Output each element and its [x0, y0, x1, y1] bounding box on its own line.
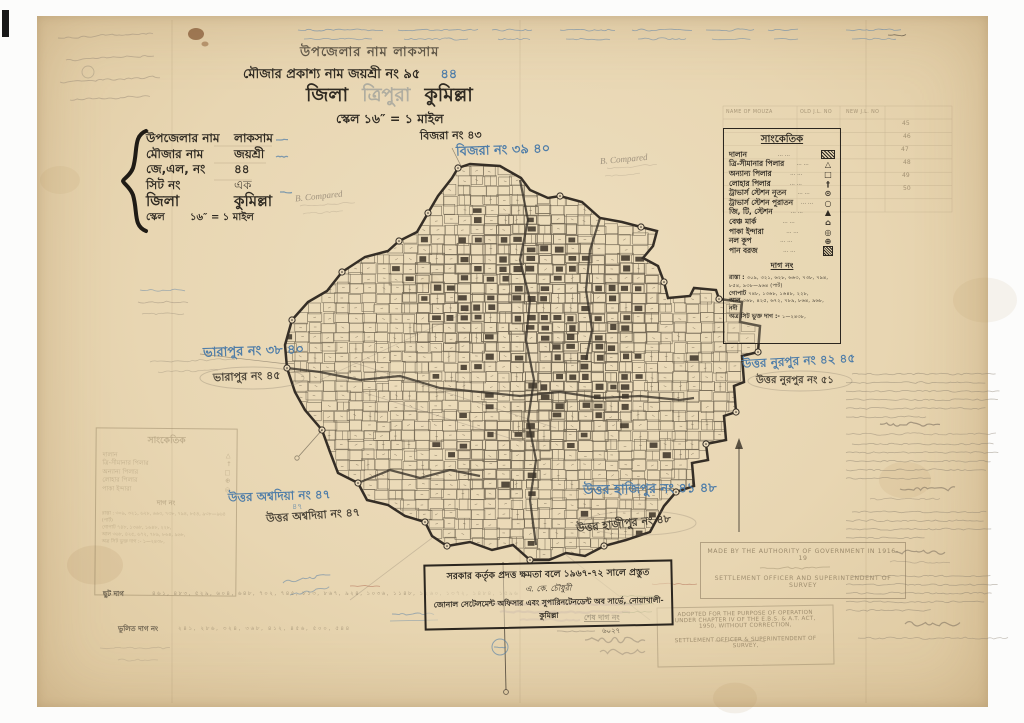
legend-dag-row: অত্র সিট ভুক্ত দাগ :- ১—২৪৩৮, — [729, 313, 835, 321]
english-stamp-authority: MADE BY THE AUTHORITY OF GOVERNMENT IN 1… — [700, 542, 906, 599]
english-stamp-adopted: ADOPTED FOR THE PURPOSE OF OPERATION UND… — [656, 604, 834, 667]
traverse-station-new-icon: ⊙ — [821, 190, 835, 198]
bhulito-dag-numbers: ২৪১, ২৮৬, ৩২৪, ৩৬৮, ৪১২, ৪৫৬, ৫০০, ৫৪৪ — [178, 627, 351, 633]
stamp-line2: জোনাল সেটেলমেন্ট অফিসার এবং সুপারিনটেনডে… — [432, 595, 665, 626]
header-jl-number-blue: ৪৪ — [440, 67, 457, 82]
legend-dag-row: আল ৩৬৮, ৪২৫, ৬৭২, ৭৮৯, ৮৬৪, ৯৬৮, — [729, 297, 835, 305]
legend-leader: ··· ··· — [793, 201, 821, 207]
legend-dag-row: রাস্তা : ৩০৯, ৩২১, ৬২৮, ৬৬৩, ৭৩৮, ৭৯৪, ৮… — [729, 274, 835, 290]
ghost-dag-title: দাগ নং — [102, 497, 230, 509]
info-value: লাকসাম — [234, 132, 273, 145]
legend-leader: ··· ··· — [758, 249, 821, 255]
legend-dag-row: গোপাট ৭৪৮, ১৩৬৮, ১৬৪৮, ২২৮, — [729, 290, 835, 298]
legend-item: পান বরজ··· ··· — [729, 247, 835, 257]
neighbor-label-nurpur-black: উত্তর নুরপুর নং ৫১ — [756, 376, 834, 387]
ghost-dag-row: অত্র সিট ভুক্ত দাগ :- ১—২৪৩৮, — [102, 539, 230, 547]
neighbor-label-bijra-black: বিজরা নং ৪৩ — [420, 129, 482, 142]
dag-row-label: আল — [729, 297, 740, 304]
info-label: জিলা — [146, 194, 224, 210]
info-box: উপজেলার নাম লাকসাম মৌজার নাম জয়শ্রী জে,… — [146, 132, 281, 227]
ghost-legend: সাংকেতিক দালান△ ত্রি-সীমানার পিলার† অন্য… — [94, 427, 237, 596]
info-label: স্কেল — [146, 213, 180, 224]
dag-row-numbers: ৩৬৮, ৪২৫, ৬৭২, ৭৮৯, ৮৬৪, ৯৬৮, — [743, 299, 825, 304]
info-value: এক — [234, 179, 252, 192]
header-mouza-name: মৌজার প্রকাশ্য নাম জয়শ্রী নং ৯৫ — [243, 67, 420, 82]
info-row-scale: স্কেল ১৬″ = ১ মাইল — [146, 213, 281, 224]
legend-leader: ··· ··· — [784, 162, 821, 168]
legend: সাংকেতিক দালান··· ··· ত্রি-সীমানার পিলার… — [723, 128, 841, 344]
info-label: মৌজার নাম — [146, 148, 224, 161]
scanned-mouza-map-sheet: NAME OF MOUZA OLD J.L. NO NEW J.L. NO 45… — [0, 0, 1024, 723]
legend-leader: ··· ··· — [751, 239, 821, 245]
info-label: জে,এল, নং — [146, 163, 224, 176]
ghost-legend-title: সাংকেতিক — [103, 432, 231, 448]
info-label: উপজেলার নাম — [146, 132, 224, 145]
header-district-name: কুমিল্লা — [424, 84, 472, 106]
header-upazila-name: উপজেলার নাম লাকসাম — [300, 46, 439, 60]
tri-boundary-pillar-icon: △ — [821, 161, 835, 169]
info-value: ১৬″ = ১ মাইল — [190, 213, 254, 224]
ghost-item: পাকা ইন্দারা — [102, 483, 131, 494]
legend-leader: ··· ··· — [747, 153, 821, 159]
bench-mark-icon: ⌂ — [821, 219, 835, 227]
mouza-cadastral-map — [265, 165, 770, 565]
info-row-mouza: মৌজার নাম জয়শ্রী — [146, 148, 281, 161]
info-row-upazila: উপজেলার নাম লাকসাম — [146, 132, 281, 145]
info-row-jl-no: জে,এল, নং ৪৪ — [146, 163, 281, 176]
ghost-sym: † — [227, 461, 230, 468]
info-row-sheet-no: সিট নং এক — [146, 179, 281, 192]
masonry-well-icon: ◎ — [821, 229, 835, 237]
legend-leader: ··· ··· — [773, 210, 821, 216]
info-label: সিট নং — [146, 179, 224, 192]
header-district-struck: ত্রিপুরা — [354, 84, 418, 106]
betel-garden-icon — [821, 246, 835, 258]
other-pillar-icon: □ — [821, 171, 835, 179]
dag-row-label: গোপাট — [729, 290, 746, 297]
legend-leader: ··· ··· — [786, 191, 821, 197]
ghost-dag-row: রাস্তা : ৩০৯, ৩২১, ৬২৮, ৬৬৩, ৭৩৮, ৭৯৪, ৮… — [102, 510, 230, 525]
legend-dag-title: দাগ নং — [729, 260, 835, 273]
ghost-sym: ⊕ — [225, 478, 230, 485]
gt-station-icon: ▲ — [821, 209, 835, 217]
bhulito-dag-label: ভুলিত দাগ নং — [118, 626, 158, 633]
chhut-dag-label: ছুট দাগ — [103, 591, 124, 598]
traverse-station-old-icon: ○ — [821, 200, 835, 208]
en-stamp-signature-space — [704, 562, 902, 575]
neighbor-label-bijra-blue: বিজরা নং ৩৯ ৪০ — [456, 142, 551, 159]
legend-title: সাংকেতিক — [729, 132, 835, 149]
legend-leader: ··· ··· — [764, 230, 821, 236]
ghost-sym: □ — [224, 469, 230, 476]
en-stamp-line2: SETTLEMENT OFFICER AND SUPERINTENDENT OF… — [704, 575, 902, 589]
info-value: ৪৪ — [234, 163, 250, 176]
info-row-district: জিলা কুমিল্লা — [146, 194, 281, 210]
iron-pillar-icon: † — [821, 181, 835, 189]
shesh-dag-value: ৬০২৭ — [602, 628, 620, 635]
legend-leader: ··· ··· — [756, 220, 821, 226]
neighbor-label-hajipur-blue: উত্তর হাজিপুর নং ৪১ ৪৮ — [583, 482, 717, 498]
neighbor-label-bharapur-black: ভারাপুর নং ৪৫ — [213, 370, 281, 384]
header-district-label: জিলা — [306, 84, 348, 106]
official-stamp-box: সরকার কর্তৃক প্রদত্ত ক্ষমতা বলে ১৯৬৭-৭২ … — [423, 559, 673, 630]
info-value: জয়শ্রী — [234, 148, 264, 161]
dag-row-numbers: ১—২৪৩৮, — [782, 315, 806, 320]
dag-row-label: রাস্তা : — [729, 274, 745, 281]
legend-leader: ··· ··· — [771, 182, 821, 188]
dag-row-numbers: ৭৪৮, ১৩৬৮, ১৬৪৮, ২২৮, — [748, 292, 809, 297]
header-scale: স্কেল ১৬″ = ১ মাইল — [336, 112, 444, 125]
ghost-sym: △ — [226, 452, 231, 459]
dag-row-label: নদী — [729, 305, 737, 312]
legend-item-label: পান বরজ — [729, 246, 758, 258]
dag-row-label: অত্র সিট ভুক্ত দাগ :- — [729, 313, 780, 320]
en-stamp-line1: MADE BY THE AUTHORITY OF GOVERNMENT IN 1… — [704, 548, 902, 562]
edge-mark — [2, 10, 9, 37]
legend-leader: ··· ··· — [772, 172, 821, 178]
